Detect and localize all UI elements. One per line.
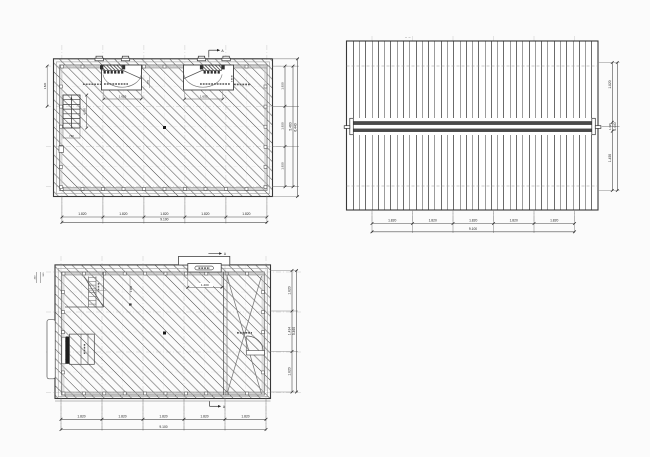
svg-text:1.820: 1.820	[200, 415, 208, 419]
svg-text:1.365: 1.365	[129, 285, 133, 292]
svg-text:1.435: 1.435	[608, 123, 612, 130]
svg-text:1.400: 1.400	[201, 283, 209, 287]
svg-text:1.820: 1.820	[510, 219, 518, 223]
svg-text:1.820: 1.820	[241, 415, 249, 419]
svg-text:1.450: 1.450	[608, 154, 612, 162]
svg-text:1.655: 1.655	[119, 95, 127, 99]
svg-text:1.820: 1.820	[242, 212, 250, 216]
svg-text:5.460: 5.460	[292, 327, 296, 335]
svg-text:1.655: 1.655	[200, 95, 208, 99]
svg-text:5.460: 5.460	[289, 122, 293, 130]
svg-text:1.820: 1.820	[429, 219, 437, 223]
svg-text:1.820: 1.820	[281, 162, 285, 170]
svg-text:1.820: 1.820	[160, 212, 168, 216]
svg-text:1.820: 1.820	[550, 219, 558, 223]
svg-text:1.820: 1.820	[288, 367, 292, 375]
svg-text:9.100: 9.100	[159, 425, 167, 429]
svg-text:1.820: 1.820	[608, 80, 612, 88]
svg-text:1.820: 1.820	[77, 415, 85, 419]
svg-text:4.185: 4.185	[83, 108, 87, 115]
svg-text:1.820: 1.820	[118, 415, 126, 419]
svg-text:1.820: 1.820	[43, 82, 47, 89]
svg-text:1.820: 1.820	[78, 212, 86, 216]
svg-text:1.820: 1.820	[159, 415, 167, 419]
svg-text:1.434: 1.434	[288, 327, 292, 335]
svg-text:9.100: 9.100	[469, 227, 477, 231]
svg-text:730: 730	[69, 134, 74, 138]
svg-text:6.440: 6.440	[293, 123, 297, 131]
svg-text:1.820: 1.820	[201, 212, 209, 216]
svg-text:1.820: 1.820	[469, 219, 477, 223]
svg-text:1.820: 1.820	[281, 122, 285, 130]
svg-text:9.100: 9.100	[160, 218, 168, 222]
svg-text:1.820: 1.820	[288, 286, 292, 294]
svg-text:6.440: 6.440	[613, 122, 617, 130]
svg-text:1.820: 1.820	[388, 219, 396, 223]
svg-text:1.820: 1.820	[281, 82, 285, 90]
svg-text:(30): (30)	[148, 80, 150, 84]
svg-text:1.820: 1.820	[119, 212, 127, 216]
